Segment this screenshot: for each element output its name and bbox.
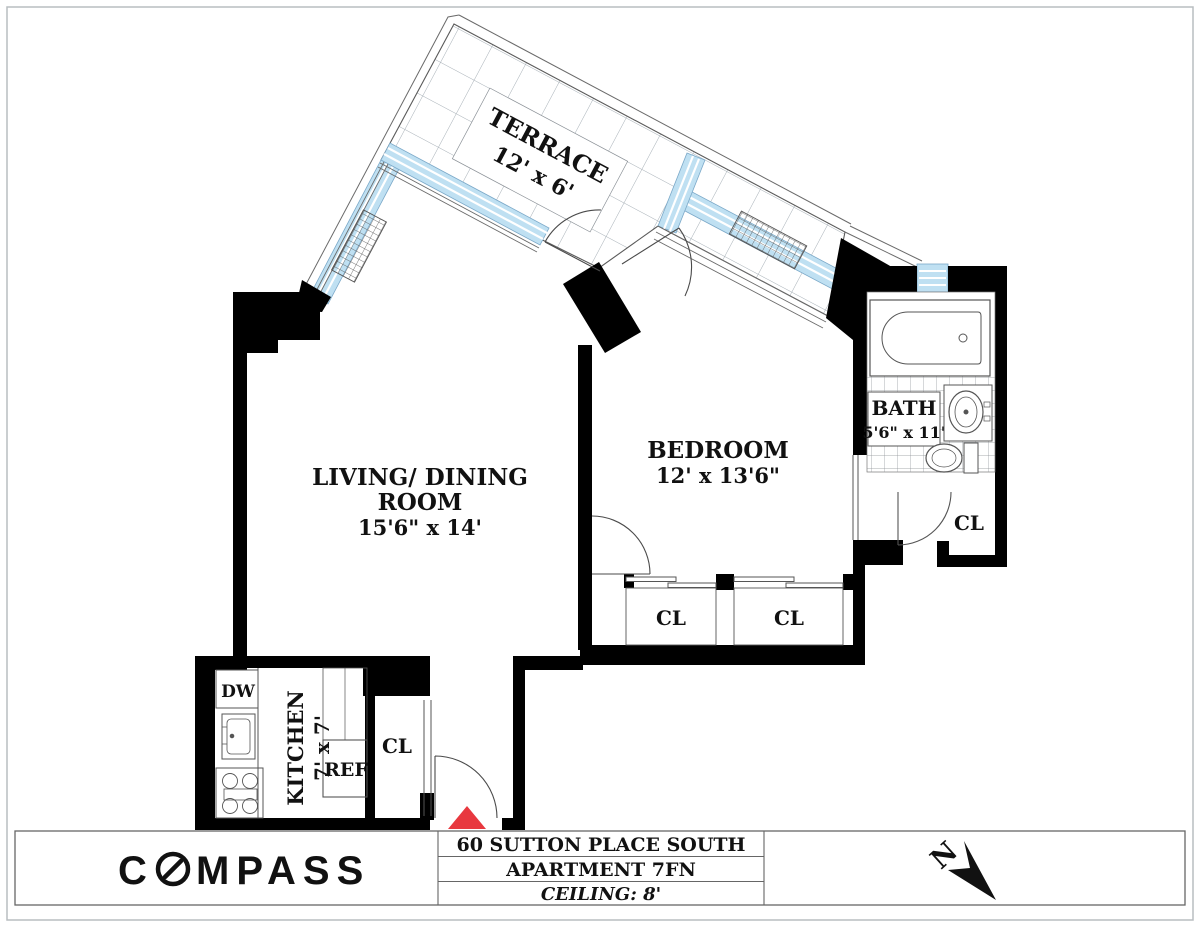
address-line: 60 SUTTON PLACE SOUTH: [456, 834, 745, 856]
bedroom-dims: 12' x 13'6": [656, 463, 780, 488]
ceiling-line: CEILING: 8': [541, 884, 661, 905]
entry-marker: [448, 806, 486, 829]
bathtub: [870, 300, 990, 376]
wall-bottom: [195, 818, 430, 830]
kitchen-label-group: KITCHEN 7' x 7': [283, 690, 334, 805]
entry-closet-label: CL: [382, 734, 412, 758]
toilet: [926, 443, 978, 473]
bath-sink: [944, 385, 992, 441]
stove: [216, 768, 263, 818]
closet-2-label: CL: [774, 606, 804, 630]
bath-closet-label: CL: [954, 511, 984, 535]
wall-entry-right: [513, 658, 525, 830]
wall-left: [233, 292, 247, 668]
wall-bedroom-left: [578, 345, 592, 578]
bedroom-door: [592, 516, 650, 574]
wall-bath-right: [995, 266, 1007, 567]
wall-bath-top-left: [870, 266, 917, 292]
bath-dims: 5'6" x 11': [862, 423, 945, 442]
wall-closets-right: [853, 558, 865, 648]
kitchen-sink: [222, 714, 255, 759]
wall-kitchen-left: [195, 656, 215, 830]
floorplan-drawing: TERRACE 12' x 6': [0, 0, 1200, 927]
kitchen-dims: 7' x 7': [310, 715, 334, 781]
title-strip: C MPASS 60 SUTTON PLACE SOUTH APARTMENT …: [15, 831, 1185, 905]
living-room-area: LIVING/ DINING ROOM 15'6" x 14': [312, 464, 528, 540]
compass-logo-mpass: MPASS: [196, 849, 370, 893]
closet-1-label: CL: [656, 606, 686, 630]
living-room-label-1: LIVING/ DINING: [312, 464, 528, 491]
apartment-line: APARTMENT 7FN: [505, 859, 696, 881]
bath-area: BATH 5'6" x 11' CL: [853, 292, 995, 555]
kitchen-label: KITCHEN: [283, 690, 308, 805]
closet-sliding-doors: [626, 577, 843, 588]
bedroom-label: BEDROOM: [647, 437, 789, 464]
wall-closets-bottom: [580, 645, 865, 665]
bath-door: [853, 455, 858, 540]
doors: [435, 210, 692, 818]
bath-closet-door: [898, 492, 951, 545]
living-room-dims: 15'6" x 14': [358, 515, 482, 540]
wall-room-divider-block: [563, 262, 641, 353]
bath-label: BATH: [871, 396, 936, 420]
compass-logo-c: C: [118, 849, 154, 893]
living-room-label-2: ROOM: [378, 489, 463, 516]
floorplan-page: TERRACE 12' x 6': [0, 0, 1200, 927]
dishwasher-label: DW: [221, 682, 256, 702]
